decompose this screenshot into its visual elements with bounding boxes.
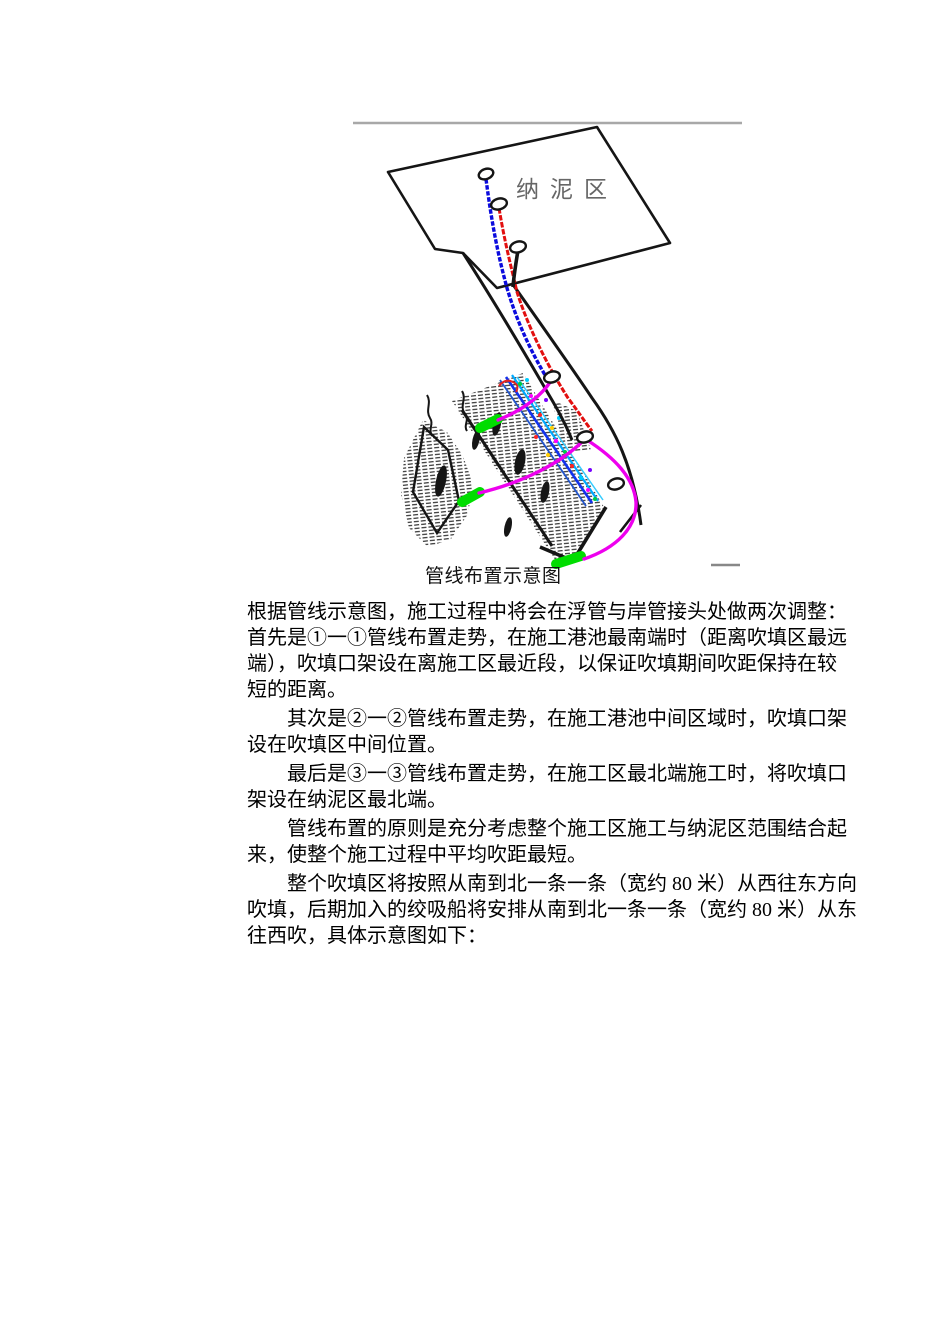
figure-caption: 管线布置示意图: [425, 566, 562, 588]
text-line: 端），吹填口架设在离施工区最近段，以保证吹填期间吹距保持在较: [247, 651, 859, 677]
text-line: 往西吹，具体示意图如下：: [247, 923, 859, 949]
pipe-joint: [607, 477, 625, 492]
document-page: 纳泥区: [0, 0, 950, 1344]
pipeline-diagram: 纳泥区: [350, 110, 750, 590]
text-line: 管线布置的原则是充分考虑整个施工区施工与纳泥区范围结合起: [247, 816, 859, 842]
paragraph: 其次是②一②管线布置走势，在施工港池中间区域时，吹填口架 设在吹填区中间位置。: [247, 706, 859, 758]
paragraph: 管线布置的原则是充分考虑整个施工区施工与纳泥区范围结合起 来，使整个施工过程中平…: [247, 816, 859, 868]
text-line: 吹填，后期加入的绞吸船将安排从南到北一条一条（宽约 80 米）从东: [247, 897, 859, 923]
text-line: 整个吹填区将按照从南到北一条一条（宽约 80 米）从西往东方向: [247, 871, 859, 897]
text-line: 架设在纳泥区最北端。: [247, 787, 859, 813]
mud-containment-area: [388, 127, 670, 288]
mud-area-label: 纳泥区: [516, 177, 618, 202]
pontoon-mark: [502, 516, 513, 537]
paragraph: 最后是③一③管线布置走势，在施工区最北端施工时，将吹填口 架设在纳泥区最北端。: [247, 761, 859, 813]
paragraph: 整个吹填区将按照从南到北一条一条（宽约 80 米）从西往东方向 吹填，后期加入的…: [247, 871, 859, 949]
text-line: 设在吹填区中间位置。: [247, 732, 859, 758]
body-text: 根据管线示意图，施工过程中将会在浮管与岸管接头处做两次调整： 首先是①一①管线布…: [247, 596, 859, 949]
text-line: 最后是③一③管线布置走势，在施工区最北端施工时，将吹填口: [247, 761, 859, 787]
text-line: 短的距离。: [247, 677, 859, 703]
text-line: 根据管线示意图，施工过程中将会在浮管与岸管接头处做两次调整：: [247, 599, 859, 625]
paragraph: 根据管线示意图，施工过程中将会在浮管与岸管接头处做两次调整： 首先是①一①管线布…: [247, 599, 859, 703]
text-line: 来，使整个施工过程中平均吹距最短。: [247, 842, 859, 868]
text-line: 首先是①一①管线布置走势，在施工港池最南端时（距离吹填区最远: [247, 625, 859, 651]
text-line: 其次是②一②管线布置走势，在施工港池中间区域时，吹填口架: [247, 706, 859, 732]
